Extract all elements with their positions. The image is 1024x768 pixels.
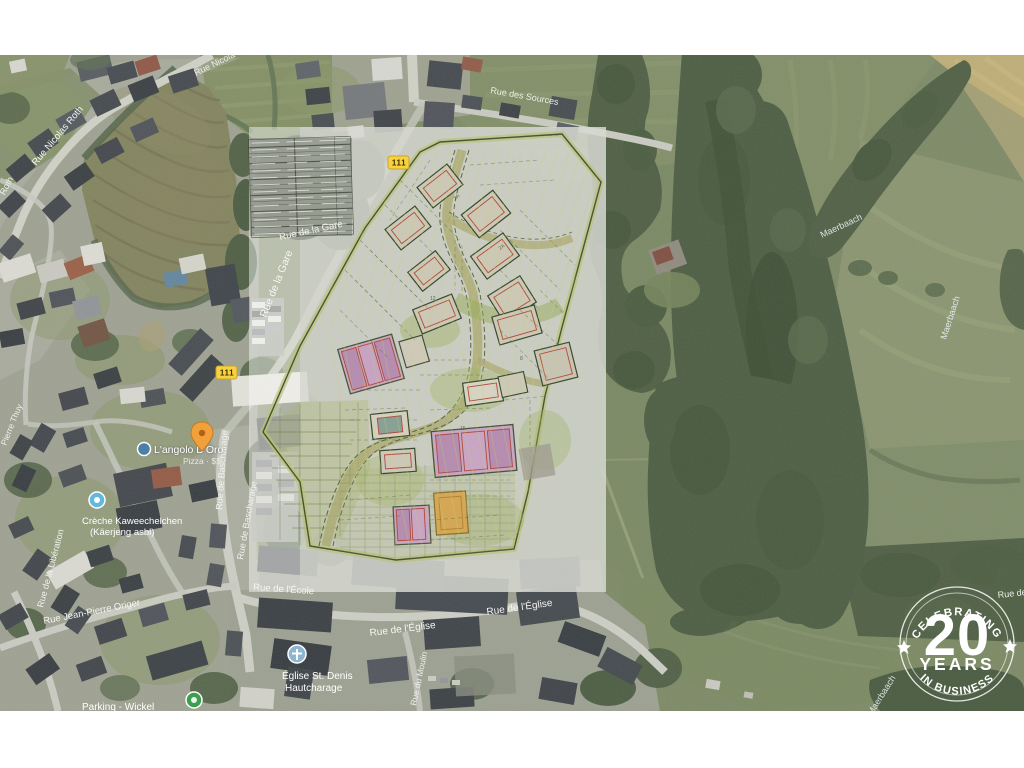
svg-text:111: 111 xyxy=(392,159,406,168)
svg-text:Crèche Kaweechelchen: Crèche Kaweechelchen xyxy=(82,516,182,527)
svg-text:L'angolo D'Oro: L'angolo D'Oro xyxy=(154,444,224,456)
svg-text:YEARS: YEARS xyxy=(919,654,994,674)
svg-text:(Käerjeng asbl): (Käerjeng asbl) xyxy=(90,527,154,538)
svg-text:Hautcharage: Hautcharage xyxy=(285,683,343,694)
svg-text:Pizza · $$: Pizza · $$ xyxy=(183,456,221,466)
svg-text:Église St. Denis: Église St. Denis xyxy=(282,669,353,682)
svg-text:111: 111 xyxy=(220,369,234,378)
